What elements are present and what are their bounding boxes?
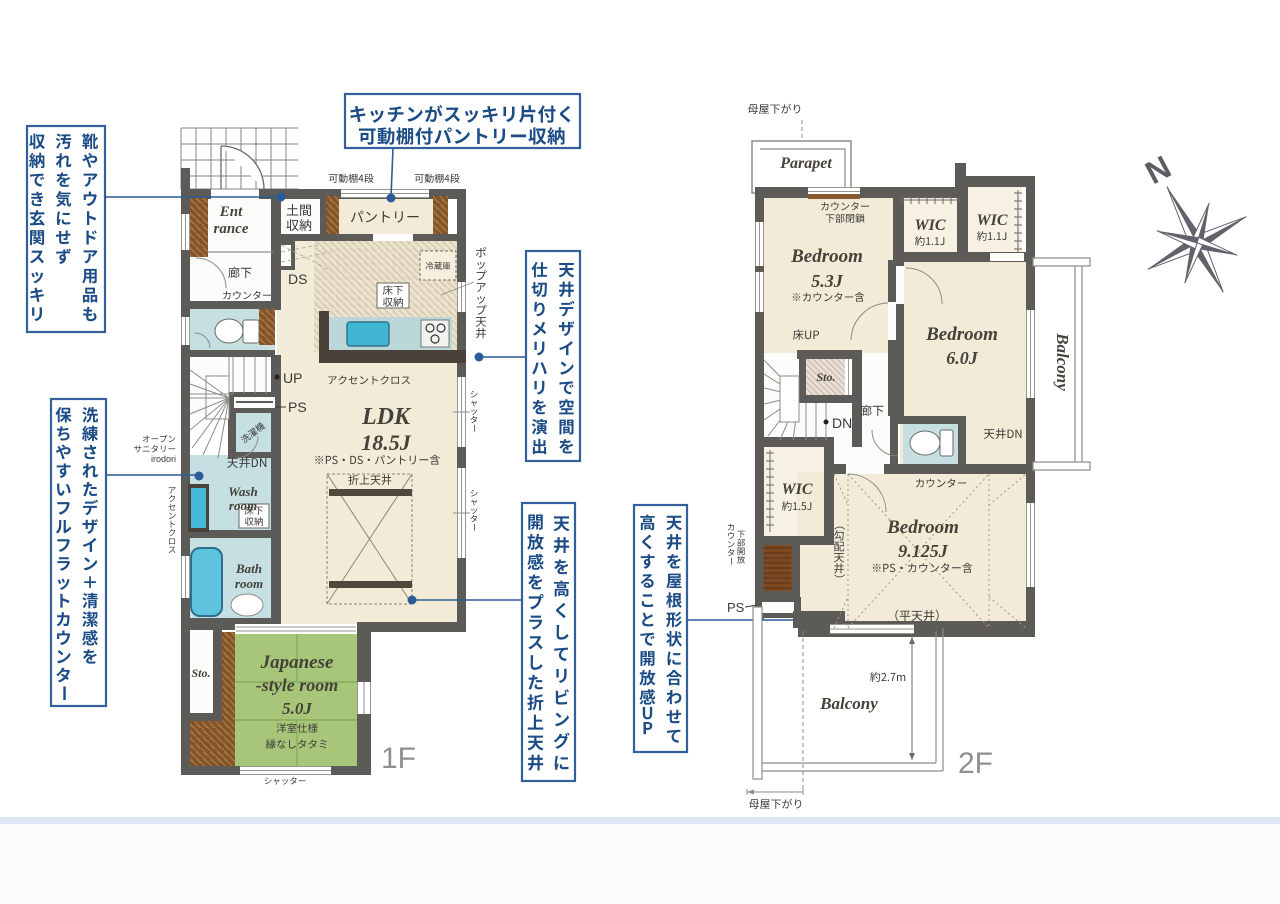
svg-text:DS: DS — [288, 271, 307, 287]
svg-text:-style room: -style room — [256, 675, 339, 695]
svg-text:1F: 1F — [381, 742, 416, 775]
svg-text:Japanese: Japanese — [260, 652, 334, 673]
svg-text:WIC: WIC — [976, 212, 1007, 229]
svg-text:Bath: Bath — [235, 561, 262, 576]
svg-text:DN: DN — [832, 415, 852, 431]
svg-text:WIC: WIC — [914, 217, 945, 234]
svg-text:PS: PS — [288, 399, 307, 415]
svg-text:LDK: LDK — [361, 404, 412, 430]
svg-text:Ent: Ent — [219, 204, 243, 220]
svg-text:room: room — [229, 498, 257, 513]
svg-text:room: room — [235, 576, 263, 591]
svg-text:rance: rance — [214, 221, 249, 237]
svg-text:Sto.: Sto. — [816, 370, 835, 384]
svg-text:6.0J: 6.0J — [946, 348, 979, 368]
svg-text:WIC: WIC — [781, 481, 812, 498]
svg-text:PS: PS — [727, 600, 745, 615]
svg-text:Parapet: Parapet — [779, 155, 832, 172]
svg-text:Balcony: Balcony — [819, 694, 878, 713]
svg-text:UP: UP — [283, 370, 302, 386]
svg-text:Bedroom: Bedroom — [886, 517, 959, 538]
svg-text:5.0J: 5.0J — [282, 699, 312, 718]
svg-text:2F: 2F — [958, 747, 993, 780]
svg-text:Wash: Wash — [228, 484, 257, 499]
svg-text:Balcony: Balcony — [1053, 332, 1072, 391]
svg-text:irodori: irodori — [151, 454, 176, 464]
svg-text:18.5J: 18.5J — [361, 430, 412, 455]
svg-text:Bedroom: Bedroom — [790, 246, 863, 267]
svg-text:9.125J: 9.125J — [898, 541, 949, 561]
svg-text:Bedroom: Bedroom — [925, 324, 998, 345]
svg-text:Sto.: Sto. — [191, 666, 210, 680]
svg-text:5.3J: 5.3J — [811, 271, 844, 291]
